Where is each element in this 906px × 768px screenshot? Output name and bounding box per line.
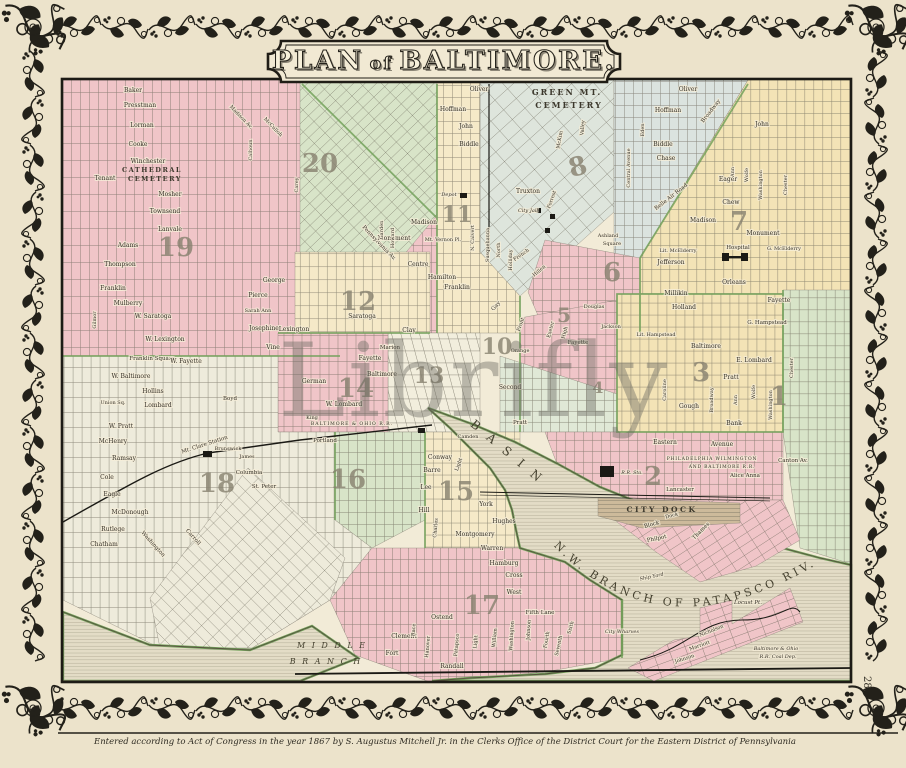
- street-label: Ostend: [431, 614, 453, 621]
- street-label: Pratt: [723, 374, 739, 381]
- ward-number: 7: [730, 207, 748, 237]
- street-label: Light: [472, 635, 479, 649]
- street-label: North: [496, 242, 502, 258]
- watermark: Librifly: [278, 322, 669, 441]
- street-label: Washington: [758, 169, 764, 200]
- ward-number: 20: [302, 149, 338, 179]
- street-label: Franklin: [100, 285, 126, 292]
- street-label: Alice Anna: [729, 473, 761, 479]
- street-label: Square: [603, 241, 621, 247]
- street-label: Biddle: [653, 141, 673, 148]
- street-label: Baltimore & Ohio: [753, 646, 799, 652]
- copyright-line: Entered according to Act of Congress in …: [93, 737, 796, 747]
- street-label: Boyd: [223, 396, 237, 402]
- street-label: Baltimore: [691, 343, 721, 350]
- street-label: W. Lexington: [145, 336, 184, 343]
- street-label: Carey: [294, 177, 300, 192]
- street-label: Lanvale: [158, 226, 182, 233]
- ward-number: 11: [442, 202, 473, 228]
- street-label: Avenue: [710, 441, 734, 448]
- street-label: Oliver: [679, 86, 698, 93]
- street-label: Mulberry: [114, 300, 143, 307]
- street-label: Johnson: [525, 619, 532, 641]
- ward-number: 18: [199, 469, 235, 499]
- ward-number: 19: [158, 233, 194, 263]
- street-label: Central Avenue: [626, 148, 632, 187]
- street-label: Fifth Lane: [526, 610, 555, 616]
- street-label: Conway: [428, 454, 453, 461]
- street-label: Thompson: [104, 261, 136, 268]
- street-label: Howard: [390, 227, 396, 248]
- street-label: Hughes: [492, 518, 515, 525]
- street-label: St. Peter: [252, 484, 277, 490]
- street-label: Cole: [100, 474, 114, 481]
- street-label: Cross: [505, 572, 522, 579]
- street-label: Ann: [733, 394, 739, 406]
- street-label: Broadway: [709, 387, 715, 413]
- street-label: Wolfe: [744, 168, 750, 182]
- street-label: Biddle: [459, 141, 479, 148]
- place-label: CITY DOCK: [626, 505, 697, 514]
- street-label: Madison: [411, 219, 437, 226]
- street-label: Brunswick: [215, 446, 243, 452]
- street-label: West: [507, 589, 522, 596]
- street-label: Ramsay: [112, 455, 137, 462]
- ward-number: 1: [770, 382, 788, 412]
- street-label: Fayette: [768, 297, 791, 304]
- place-label: GREEN MT.: [532, 87, 602, 97]
- street-label: City Jail: [518, 208, 538, 214]
- street-label: Randall: [440, 663, 463, 670]
- street-label: Columbia: [236, 470, 263, 476]
- street-label: Baker: [124, 87, 142, 94]
- street-label: Chew: [722, 199, 740, 206]
- street-label: Oliver: [470, 86, 489, 93]
- street-label: Rutlege: [101, 526, 125, 533]
- street-label: Hollins: [142, 388, 164, 395]
- street-label: John: [458, 123, 473, 130]
- street-label: Fort: [386, 650, 399, 657]
- street-label: Gough: [679, 403, 699, 410]
- street-label: Mt. Vernon Pl.: [425, 237, 462, 243]
- street-label: G. McElderry: [767, 246, 801, 252]
- street-label: John: [754, 121, 769, 128]
- street-label: Gilmor: [92, 311, 98, 329]
- street-label: Chester: [789, 357, 795, 378]
- street-label: Sarah Ann: [245, 308, 272, 314]
- street-label: Hill: [419, 507, 430, 514]
- street-label: Hoffman: [440, 106, 466, 113]
- street-label: Wolfe: [751, 385, 757, 399]
- street-label: Holland: [672, 304, 696, 311]
- street-label: Chase: [657, 155, 676, 162]
- street-label: Orleans: [722, 279, 746, 286]
- street-label: Barre: [423, 467, 441, 474]
- place-label: CEMETERY: [128, 175, 182, 183]
- street-label: R.R. Sta.: [620, 470, 643, 476]
- street-label: Chatham: [90, 541, 118, 548]
- street-label: AND BALTIMORE R.R.: [688, 464, 756, 470]
- street-label: Lombard: [144, 402, 172, 409]
- street-label: Millikin: [664, 290, 687, 297]
- street-label: Hospital: [726, 245, 750, 251]
- street-label: Canton Av.: [778, 458, 808, 464]
- street-label: Susquehanna: [485, 228, 491, 262]
- street-label: W. Baltimore: [112, 373, 151, 380]
- street-label: Union Sq.: [100, 400, 125, 406]
- ward-number: 2: [644, 462, 662, 492]
- street-label: James: [238, 454, 255, 460]
- ward-number: 6: [603, 258, 621, 288]
- street-label: Race: [410, 623, 417, 636]
- street-label: Monument: [747, 230, 781, 237]
- street-label: Ashland: [597, 233, 619, 239]
- street-label: Bank: [726, 420, 742, 427]
- street-label: Josephine: [248, 325, 279, 332]
- street-label: City Wharves: [605, 629, 639, 635]
- street-label: Franklin Square: [129, 356, 174, 362]
- street-label: Pierce: [248, 292, 268, 299]
- ward-number: 12: [340, 287, 376, 317]
- street-label: York: [478, 501, 493, 508]
- street-label: Adams: [117, 242, 139, 249]
- ward-number: 16: [330, 465, 366, 495]
- street-label: Franklin: [444, 284, 470, 291]
- street-label: Lancaster: [666, 487, 694, 493]
- street-label: Truxton: [516, 188, 540, 195]
- street-label: Lit. McElderry: [659, 248, 696, 254]
- street-label: G. Hampstead: [747, 320, 787, 326]
- street-label: R.R. Coal Dep.: [758, 654, 796, 660]
- street-label: Jefferson: [656, 259, 684, 266]
- street-label: Douglas: [584, 304, 605, 310]
- street-label: Lorman: [130, 122, 154, 129]
- street-label: McHenry: [99, 438, 128, 445]
- street-label: Tenant: [95, 175, 116, 182]
- street-label: Centre: [408, 261, 429, 268]
- plate-number: 28.: [861, 676, 872, 692]
- street-label: Lee: [420, 484, 432, 491]
- street-label: N. Calvert: [470, 225, 476, 251]
- baltimore-map-image: BakerPresstmanLormanCookeWinchesterTenan…: [0, 0, 906, 768]
- ward-number: 3: [692, 358, 710, 388]
- street-label: McDonough: [112, 509, 149, 516]
- street-label: W. Fayette: [170, 358, 202, 365]
- map-title: PLANofBALTIMORE.: [272, 46, 616, 76]
- street-label: Calhoun: [248, 139, 254, 161]
- place-label: CEMETERY: [535, 100, 603, 110]
- street-label: Ann: [730, 166, 736, 178]
- street-label: Winchester: [131, 158, 166, 165]
- street-label: Hamilton: [428, 274, 456, 281]
- street-label: Depot: [440, 192, 457, 198]
- street-label: Presstman: [124, 102, 156, 109]
- title-cartouche: PLANofBALTIMORE. PLANofBALTIMORE.: [268, 41, 620, 82]
- street-label: George: [263, 277, 286, 284]
- street-label: Chester: [783, 174, 789, 195]
- water-label: B R A N C H: [289, 657, 363, 666]
- water-label: M I D D L E: [296, 641, 367, 650]
- street-label: Warren: [481, 545, 504, 552]
- street-label: Eagle: [103, 491, 121, 498]
- street-label: Cooke: [128, 141, 147, 148]
- street-label: W. Pratt: [109, 423, 134, 430]
- street-label: Eden: [640, 123, 646, 137]
- street-label: Madison: [690, 217, 716, 224]
- street-label: Hoffman: [655, 107, 681, 114]
- ward-number: 17: [464, 591, 500, 621]
- street-label: W. Saratoga: [135, 313, 172, 320]
- street-label: Garden: [379, 220, 385, 240]
- ward-number: 15: [438, 477, 474, 507]
- street-label: Mosher: [158, 191, 181, 198]
- street-label: E. Lombard: [736, 357, 772, 364]
- place-label: CATHEDRAL: [122, 166, 182, 174]
- street-label: Hamburg: [490, 560, 519, 567]
- street-label: Montgomery: [456, 531, 496, 538]
- map-sheet: BakerPresstmanLormanCookeWinchesterTenan…: [0, 0, 906, 768]
- street-label: PHILADELPHIA WILMINGTON: [667, 456, 758, 462]
- street-label: Townsend: [150, 208, 181, 215]
